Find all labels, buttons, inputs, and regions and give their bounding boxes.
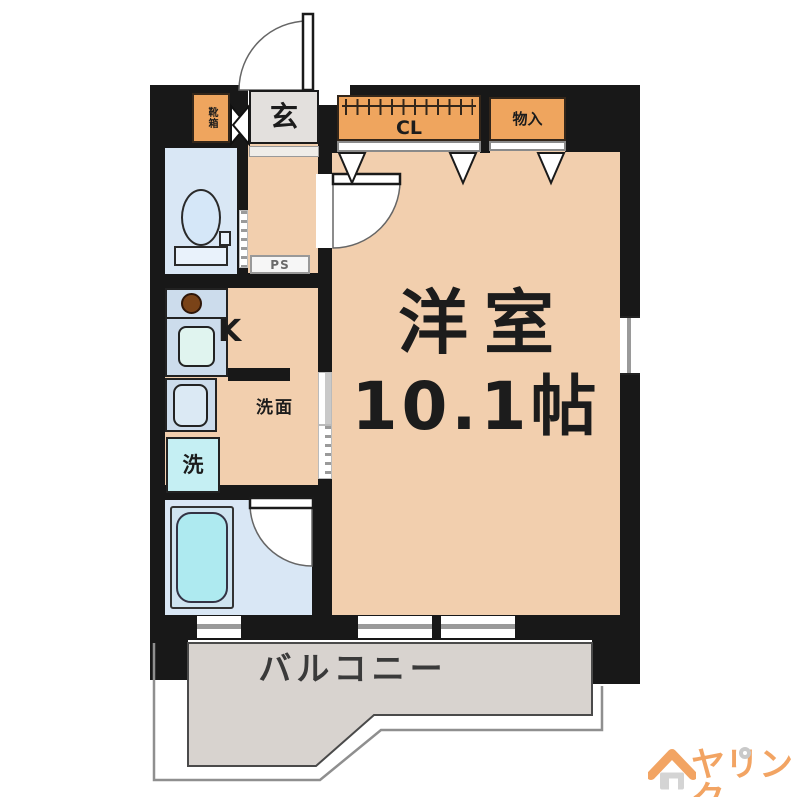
storage-track [489,141,566,151]
entrance-door-swing-icon [239,21,308,90]
burner-icon [181,293,202,314]
house-icon [648,745,696,792]
balcony-label: バルコニー [243,652,463,685]
logo-ring-icon [739,747,751,759]
toilet-icon [181,189,221,246]
closet-door-mark-icon [450,153,476,183]
shoebox: 靴箱 [192,93,230,143]
washroom-door-panel [318,372,332,425]
entrance-area: 玄 [249,90,319,144]
sink-icon [178,326,215,367]
main-room-label: 洋室 [332,288,620,358]
basin-icon [173,384,208,427]
main-room-size: 10.1帖 [332,374,620,440]
closet: CL [337,95,481,141]
washroom-accordion-door [318,425,332,479]
kitchen-label: K [218,317,241,347]
entrance-step [249,146,319,157]
main-room-door-opening [316,174,334,248]
closet-track [337,141,481,152]
pipe-shaft: PS [250,255,310,274]
toilet-tank-icon [174,246,228,266]
washroom-label: 洗面 [235,400,315,417]
bathroom-door-swing-icon [250,504,312,566]
toilet-handle-icon [219,231,231,246]
washing-machine: 洗 [166,437,220,493]
entrance-door-leaf [303,14,313,90]
entrance-label: 玄 [270,103,298,131]
storage-label: 物入 [512,112,542,127]
partition-wall [228,368,290,381]
pipe-shaft-label: PS [270,259,289,271]
hanger-rod-icon [345,99,473,115]
storage: 物入 [489,97,566,141]
bathtub-icon [170,506,234,609]
storage-door-mark-icon [538,153,564,183]
floorplan-canvas: 玄 靴箱 CL 物入 PS K 洗面 洗 [0,0,800,797]
washing-machine-label: 洗 [183,455,204,476]
main-room-label-block: 洋室 10.1帖 [332,288,620,440]
bathroom-door-leaf [250,498,313,508]
closet-label: CL [339,119,479,138]
main-room-door-swing-icon [333,181,400,248]
main-room-door-leaf [333,174,400,184]
shoebox-label: 靴箱 [206,107,216,129]
hanger-rod-icon [342,105,476,107]
toilet-door [239,210,248,268]
